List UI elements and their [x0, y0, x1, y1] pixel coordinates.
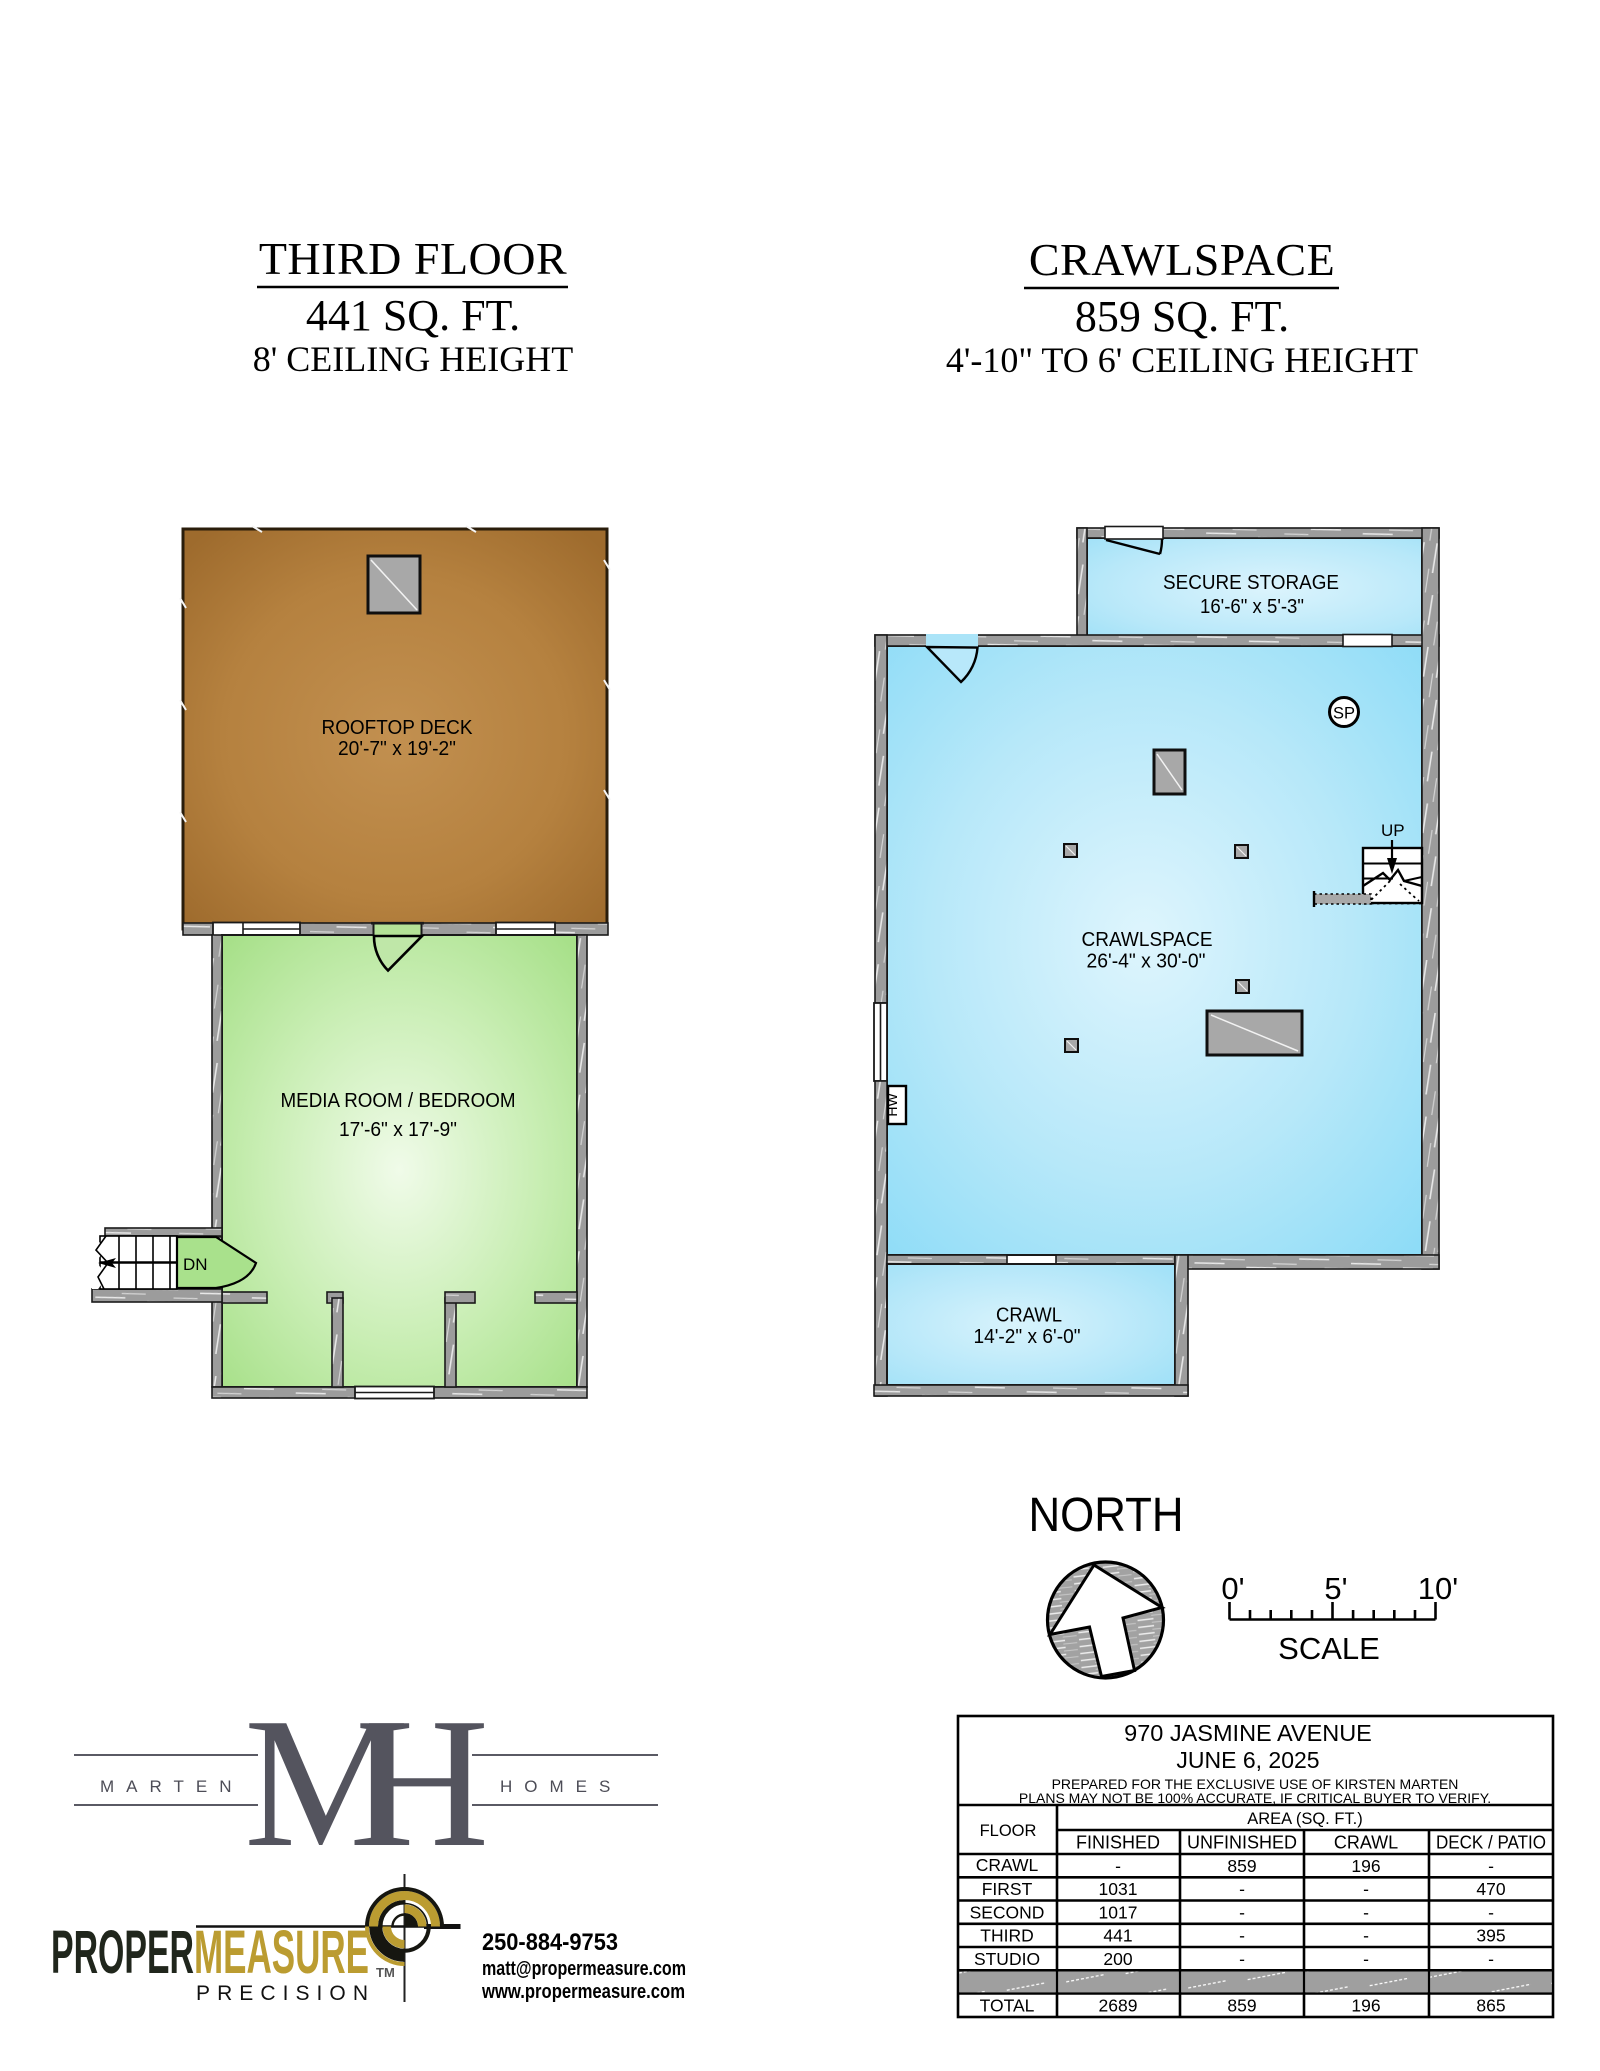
svg-text:-: -: [1363, 1926, 1369, 1946]
svg-text:www.propermeasure.com: www.propermeasure.com: [481, 1981, 685, 2003]
svg-text:-: -: [1239, 1903, 1245, 1923]
svg-text:MEDIA ROOM / BEDROOM: MEDIA ROOM / BEDROOM: [281, 1089, 516, 1112]
svg-text:UNFINISHED: UNFINISHED: [1187, 1833, 1297, 1853]
svg-text:MARTEN: MARTEN: [100, 1777, 243, 1796]
svg-text:10': 10': [1418, 1571, 1458, 1606]
svg-text:JUNE 6, 2025: JUNE 6, 2025: [1176, 1747, 1319, 1773]
svg-text:SCALE: SCALE: [1278, 1631, 1380, 1666]
svg-text:NORTH: NORTH: [1029, 1489, 1184, 1542]
svg-text:STUDIO: STUDIO: [974, 1949, 1040, 1969]
svg-text:-: -: [1488, 1949, 1494, 1969]
svg-text:859 SQ. FT.: 859 SQ. FT.: [1075, 292, 1289, 341]
svg-text:196: 196: [1351, 1995, 1380, 2015]
svg-text:PLANS MAY NOT BE 100% ACCURATE: PLANS MAY NOT BE 100% ACCURATE, IF CRITI…: [1019, 1790, 1491, 1806]
svg-text:200: 200: [1103, 1949, 1132, 1969]
svg-text:4'-10" TO 6' CEILING HEIGHT: 4'-10" TO 6' CEILING HEIGHT: [946, 340, 1418, 380]
svg-text:-: -: [1363, 1903, 1369, 1923]
svg-text:HW: HW: [884, 1093, 900, 1117]
svg-text:-: -: [1115, 1856, 1121, 1876]
svg-text:SECOND: SECOND: [970, 1903, 1045, 1923]
svg-text:196: 196: [1351, 1856, 1380, 1876]
svg-text:FINISHED: FINISHED: [1076, 1833, 1160, 1853]
svg-text:THIRD: THIRD: [980, 1926, 1033, 1946]
svg-text:-: -: [1363, 1879, 1369, 1899]
svg-text:PROPER: PROPER: [51, 1918, 194, 1986]
svg-text:20'-7" x 19'-2": 20'-7" x 19'-2": [338, 737, 456, 760]
svg-text:-: -: [1239, 1879, 1245, 1899]
svg-text:859: 859: [1227, 1856, 1256, 1876]
svg-text:UP: UP: [1381, 821, 1405, 840]
svg-text:-: -: [1363, 1949, 1369, 1969]
svg-text:395: 395: [1476, 1926, 1505, 1946]
svg-text:441 SQ. FT.: 441 SQ. FT.: [306, 291, 520, 340]
svg-text:PRECISION: PRECISION: [196, 1982, 377, 2005]
svg-text:17'-6" x 17'-9": 17'-6" x 17'-9": [339, 1118, 457, 1141]
svg-text:THIRD FLOOR: THIRD FLOOR: [259, 233, 567, 284]
svg-text:441: 441: [1103, 1926, 1132, 1946]
svg-text:5': 5': [1324, 1571, 1347, 1606]
svg-text:CRAWL: CRAWL: [996, 1304, 1062, 1327]
svg-text:CRAWL: CRAWL: [976, 1855, 1039, 1875]
svg-text:-: -: [1488, 1856, 1494, 1876]
svg-text:TM: TM: [376, 1965, 395, 1980]
svg-text:14'-2" x 6'-0": 14'-2" x 6'-0": [974, 1325, 1081, 1348]
svg-text:8' CEILING HEIGHT: 8' CEILING HEIGHT: [253, 339, 573, 379]
svg-text:16'-6" x 5'-3": 16'-6" x 5'-3": [1200, 595, 1304, 618]
svg-text:CRAWL: CRAWL: [1334, 1833, 1398, 1853]
svg-text:DN: DN: [183, 1255, 208, 1274]
svg-text:HOMES: HOMES: [500, 1777, 622, 1796]
svg-text:0': 0': [1221, 1571, 1244, 1606]
svg-text:MEASURE: MEASURE: [194, 1918, 369, 1986]
svg-text:FLOOR: FLOOR: [980, 1822, 1037, 1840]
svg-text:CRAWLSPACE: CRAWLSPACE: [1082, 928, 1213, 951]
svg-text:250-884-9753: 250-884-9753: [482, 1929, 618, 1956]
svg-text:SP: SP: [1333, 705, 1355, 723]
svg-text:-: -: [1239, 1949, 1245, 1969]
svg-text:470: 470: [1476, 1879, 1505, 1899]
svg-text:TOTAL: TOTAL: [980, 1995, 1035, 2015]
svg-text:matt@propermeasure.com: matt@propermeasure.com: [482, 1958, 686, 1980]
svg-text:26'-4" x 30'-0": 26'-4" x 30'-0": [1087, 950, 1206, 973]
svg-text:CRAWLSPACE: CRAWLSPACE: [1029, 234, 1335, 285]
svg-text:SECURE STORAGE: SECURE STORAGE: [1163, 571, 1339, 594]
svg-text:2689: 2689: [1099, 1995, 1138, 2015]
svg-text:970 JASMINE AVENUE: 970 JASMINE AVENUE: [1124, 1720, 1372, 1746]
svg-text:865: 865: [1476, 1995, 1505, 2015]
svg-text:-: -: [1239, 1926, 1245, 1946]
svg-text:AREA (SQ. FT.): AREA (SQ. FT.): [1247, 1810, 1363, 1828]
svg-text:FIRST: FIRST: [982, 1879, 1033, 1899]
svg-text:DECK / PATIO: DECK / PATIO: [1436, 1833, 1546, 1853]
svg-text:1017: 1017: [1099, 1903, 1138, 1923]
svg-text:1031: 1031: [1099, 1879, 1138, 1899]
svg-text:859: 859: [1227, 1995, 1256, 2015]
svg-text:H: H: [355, 1680, 489, 1886]
svg-text:-: -: [1488, 1903, 1494, 1923]
svg-text:ROOFTOP DECK: ROOFTOP DECK: [322, 716, 473, 739]
